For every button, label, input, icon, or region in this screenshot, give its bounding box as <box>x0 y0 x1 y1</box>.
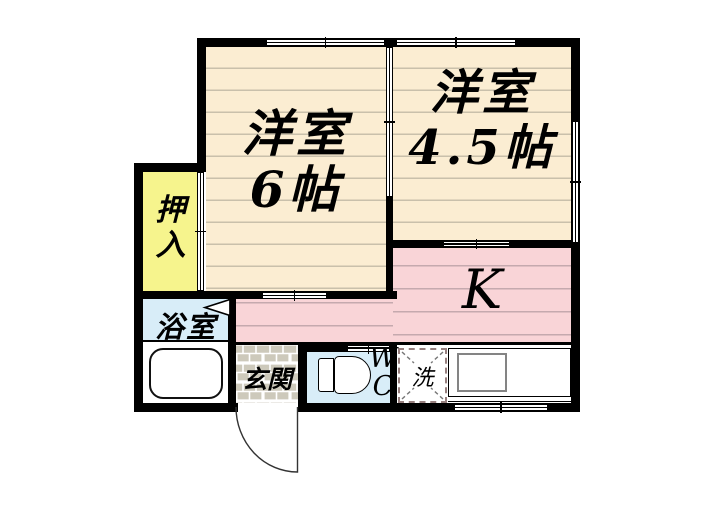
wall-bottom-left <box>134 403 238 412</box>
wall-left <box>134 163 143 412</box>
bath-label: 浴室 <box>143 304 229 346</box>
room-west6-size: 6帖 <box>206 162 386 218</box>
room-west6-label: 洋室 6帖 <box>206 106 386 218</box>
window-kitchen-bottom <box>454 404 548 411</box>
entrance-door-arc <box>236 407 298 472</box>
entrance-label: 玄関 <box>236 360 298 396</box>
bathtub <box>149 348 223 399</box>
closet-char1: 押 <box>143 194 198 229</box>
floor-plan: 洗 洋室 6帖 洋室 4.5帖 押 入 浴室 K 玄関 W C <box>0 0 720 512</box>
closet-char2: 入 <box>143 229 198 264</box>
window-west45-top <box>396 39 516 46</box>
window-west6-top <box>266 39 385 46</box>
wall-wc-top <box>307 344 347 352</box>
window-west45-right <box>572 121 579 243</box>
sliding-door-closet <box>197 172 204 291</box>
sliding-door-between-rooms <box>386 47 393 197</box>
kitchen-label: K <box>393 258 571 321</box>
toilet-tank <box>318 358 334 392</box>
wc-label: W C <box>362 345 404 402</box>
closet-label: 押 入 <box>143 194 198 263</box>
wall-bath-right <box>228 299 236 412</box>
laundry-pan: 洗 <box>398 348 447 403</box>
kitchen-sink <box>457 353 507 392</box>
wall-left-upper <box>197 38 206 172</box>
wall-closet-top <box>134 163 206 172</box>
sliding-door-west6-kitchen <box>262 292 327 299</box>
room-west45-size: 4.5帖 <box>393 121 571 176</box>
wc-char2: C <box>362 373 404 401</box>
wall-top <box>197 38 580 47</box>
laundry-label: 洗 <box>411 360 433 392</box>
kitchen-floor-hall <box>236 299 393 342</box>
room-west45-name: 洋室 <box>393 66 571 121</box>
wc-char1: W <box>362 345 404 373</box>
room-west6-name: 洋室 <box>206 106 386 162</box>
wall-wc-left <box>298 342 307 412</box>
kitchen-counter-edge <box>448 401 571 402</box>
room-west45-label: 洋室 4.5帖 <box>393 66 571 175</box>
sliding-door-west45-kitchen <box>443 241 510 248</box>
wall-kitchen-bottom-line <box>236 342 580 345</box>
